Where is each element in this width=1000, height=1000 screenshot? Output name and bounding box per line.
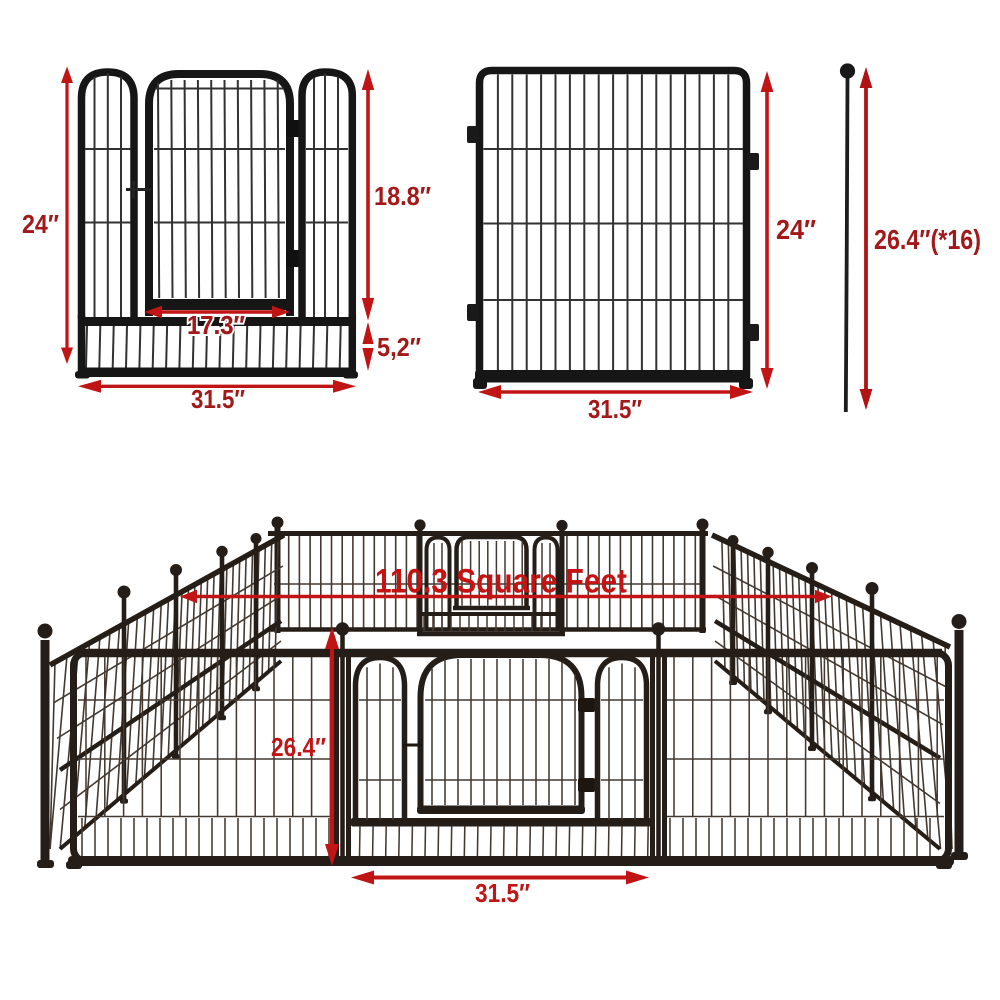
svg-text:26.4″: 26.4″: [271, 734, 326, 762]
svg-text:5,2″: 5,2″: [377, 332, 421, 362]
svg-text:31.5″: 31.5″: [588, 394, 642, 424]
svg-text:24″: 24″: [776, 214, 816, 245]
svg-text:24″: 24″: [22, 209, 59, 239]
svg-text:110.3 Square Feet: 110.3 Square Feet: [375, 563, 627, 601]
svg-text:26.4″(*16): 26.4″(*16): [874, 224, 981, 255]
svg-text:31.5″: 31.5″: [475, 880, 530, 908]
svg-text:18.8″: 18.8″: [374, 181, 431, 211]
svg-text:17.3″: 17.3″: [187, 310, 245, 340]
svg-text:31.5″: 31.5″: [191, 384, 245, 414]
